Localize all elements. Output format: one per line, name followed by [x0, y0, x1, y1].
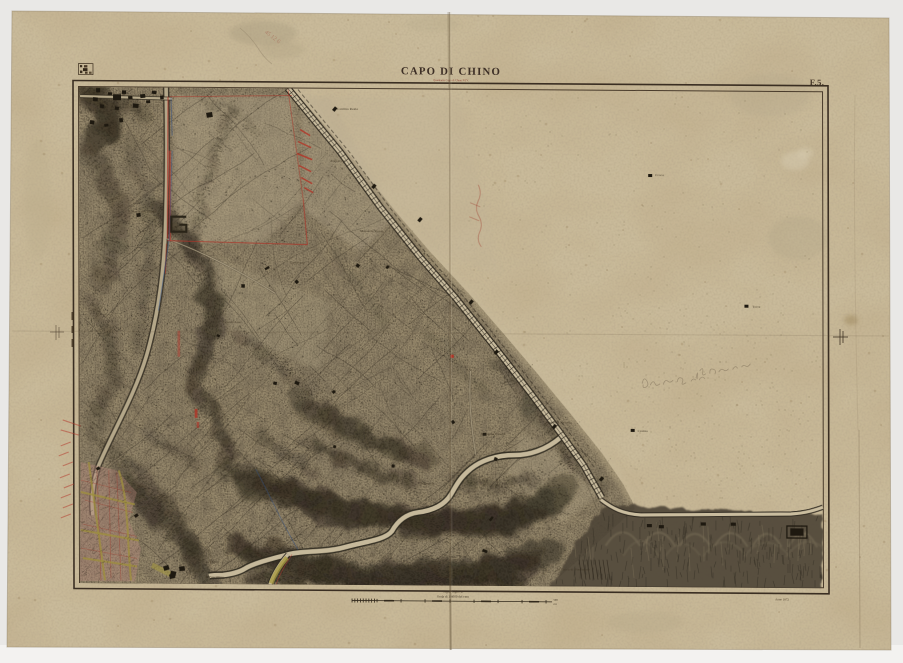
svg-text:500: 500: [554, 599, 559, 602]
svg-text:Casino: Casino: [638, 429, 649, 433]
svg-text:Arenaccia: Arenaccia: [330, 159, 346, 163]
svg-text:Lotrecase: Lotrecase: [290, 261, 305, 265]
svg-text:Masseria Rossa: Masseria Rossa: [360, 229, 384, 233]
svg-text:Masseria Catena: Masseria Catena: [481, 432, 506, 436]
svg-text:Masseria: Masseria: [421, 481, 435, 485]
svg-text:mt.: mt.: [554, 603, 558, 606]
svg-text:S.Maria del Pianto: S.Maria del Pianto: [128, 209, 156, 213]
svg-text:Capodichino: Capodichino: [222, 320, 241, 324]
svg-text:Croce: Croce: [655, 173, 664, 177]
svg-text:di Pascillino: di Pascillino: [205, 575, 224, 579]
svg-text:Torre: Torre: [752, 305, 760, 309]
svg-text:Segue foglio 6.: Segue foglio 6.: [443, 590, 463, 594]
svg-text:Scala di 1/4000 del vero: Scala di 1/4000 del vero: [437, 595, 469, 599]
svg-text:Anno 1872: Anno 1872: [775, 597, 789, 601]
svg-text:la Vacca di Piscittiere: la Vacca di Piscittiere: [557, 567, 590, 571]
svg-text:Masseria Vittoria: Masseria Vittoria: [546, 420, 572, 424]
svg-text:la Vigna: la Vigna: [206, 560, 219, 564]
svg-text:Cantina Reale: Cantina Reale: [337, 107, 359, 111]
